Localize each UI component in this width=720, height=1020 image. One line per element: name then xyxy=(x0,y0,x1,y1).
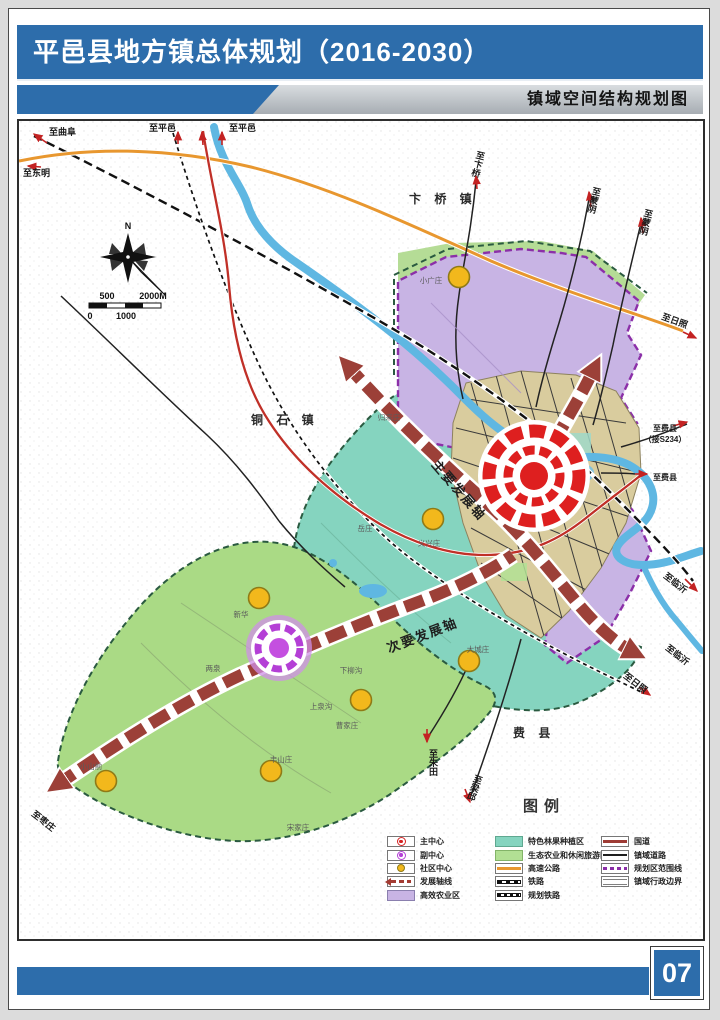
svg-text:至费县: 至费县 xyxy=(653,472,677,482)
legend-item-community-center: 社区中心 xyxy=(387,862,460,875)
legend-item-admin-boundary: 镇域行政边界 xyxy=(601,875,682,888)
national-road-icon xyxy=(601,836,629,847)
planning-boundary-icon xyxy=(601,863,629,874)
legend-item-main-center: 主中心 xyxy=(387,835,460,848)
svg-text:至曲阜: 至曲阜 xyxy=(49,126,76,137)
legend-column-3: 国道 镇域道路 规划区范围线 镇域行政边界 xyxy=(601,835,682,889)
legend-item-dev-axis: 发展轴线 xyxy=(387,875,460,888)
main-center-symbol xyxy=(478,420,590,532)
legend-column-1: 主中心 副中心 社区中心 发展轴线 xyxy=(387,835,460,902)
svg-text:归来庄: 归来庄 xyxy=(378,412,401,422)
development-axis-icon xyxy=(387,876,415,887)
legend-title: 图例 xyxy=(385,795,703,816)
sheet: 平邑县地方镇总体规划（2016-2030） 镇域空间结构规划图 xyxy=(8,8,710,1010)
legend-column-2: 特色林果种植区 生态农业和休闲旅游区 高速公路 铁路 xyxy=(495,835,608,902)
legend-item-forest-fruit: 特色林果种植区 xyxy=(495,835,608,848)
page-number: 07 xyxy=(662,958,692,989)
legend-item-sub-center: 副中心 xyxy=(387,848,460,861)
svg-text:N: N xyxy=(125,221,132,231)
label-fei-county: 费 县 xyxy=(513,725,555,740)
svg-text:至东明: 至东明 xyxy=(23,167,50,178)
svg-text:新华: 新华 xyxy=(234,609,249,619)
svg-text:至平邑: 至平邑 xyxy=(149,123,176,133)
page-number-box: 07 xyxy=(651,947,703,999)
svg-text:宋家庄: 宋家庄 xyxy=(287,822,310,832)
subtitle-band: 镇域空间结构规划图 xyxy=(253,85,703,114)
expressway-icon xyxy=(495,863,523,874)
legend-item-expressway: 高速公路 xyxy=(495,862,608,875)
svg-text:大城庄: 大城庄 xyxy=(467,644,490,654)
page-title: 平邑县地方镇总体规划（2016-2030） xyxy=(17,25,703,79)
map-subtitle: 镇域空间结构规划图 xyxy=(253,85,703,114)
town-road-icon xyxy=(601,850,629,861)
legend-item-eco-tourism: 生态农业和休闲旅游区 xyxy=(495,848,608,861)
svg-text:至平邑: 至平邑 xyxy=(229,123,256,133)
svg-text:丰山庄: 丰山庄 xyxy=(270,754,293,764)
svg-text:至费县: 至费县 xyxy=(653,423,677,433)
legend-item-agri-zone: 高效农业区 xyxy=(387,889,460,902)
railway-icon xyxy=(495,876,523,887)
svg-text:岳庄: 岳庄 xyxy=(358,523,373,533)
legend-item-national-road: 国道 xyxy=(601,835,682,848)
eco-tourism-swatch xyxy=(495,850,523,861)
svg-text:0: 0 xyxy=(87,311,92,321)
title-bar: 平邑县地方镇总体规划（2016-2030） xyxy=(17,25,703,81)
community-center-icon xyxy=(387,863,415,874)
map-area: N 500 2000M 0 1000 卞 桥 镇 xyxy=(17,119,705,941)
sub-center-icon xyxy=(387,850,415,861)
svg-text:小广庄: 小广庄 xyxy=(420,275,443,285)
svg-text:2000M: 2000M xyxy=(139,291,167,301)
sub-center-symbol xyxy=(246,615,312,681)
legend-item-railway: 铁路 xyxy=(495,875,608,888)
planning-map-page: 平邑县地方镇总体规划（2016-2030） 镇域空间结构规划图 xyxy=(0,0,720,1020)
legend-item-planned-railway: 规划铁路 xyxy=(495,889,608,902)
svg-text:两泉: 两泉 xyxy=(206,663,221,673)
admin-boundary-icon xyxy=(601,876,629,887)
planned-railway-icon xyxy=(495,890,523,901)
footer-bar xyxy=(17,967,649,995)
legend-item-planning-boundary: 规划区范围线 xyxy=(601,862,682,875)
label-tongshi-town: 铜 石 镇 xyxy=(251,412,319,427)
legend-item-town-road: 镇域道路 xyxy=(601,848,682,861)
svg-text:下柳沟: 下柳沟 xyxy=(340,665,363,675)
forest-fruit-swatch xyxy=(495,836,523,847)
svg-text:（接S234）: （接S234） xyxy=(644,434,687,444)
svg-text:1000: 1000 xyxy=(116,311,136,321)
svg-text:上泉沟: 上泉沟 xyxy=(310,701,333,711)
subtitle-bar: 镇域空间结构规划图 xyxy=(17,85,703,114)
svg-text:小山前: 小山前 xyxy=(80,761,103,771)
label-bianqiao-town: 卞 桥 镇 xyxy=(409,191,477,206)
svg-text:至朱田: 至朱田 xyxy=(428,749,439,777)
main-center-icon xyxy=(387,836,415,847)
svg-text:曹家庄: 曹家庄 xyxy=(336,720,359,730)
svg-text:义兴庄: 义兴庄 xyxy=(418,538,441,548)
agriculture-zone-swatch xyxy=(387,890,415,901)
legend: 图例 主中心 副中心 社区中心 xyxy=(385,793,703,929)
svg-text:500: 500 xyxy=(99,291,114,301)
